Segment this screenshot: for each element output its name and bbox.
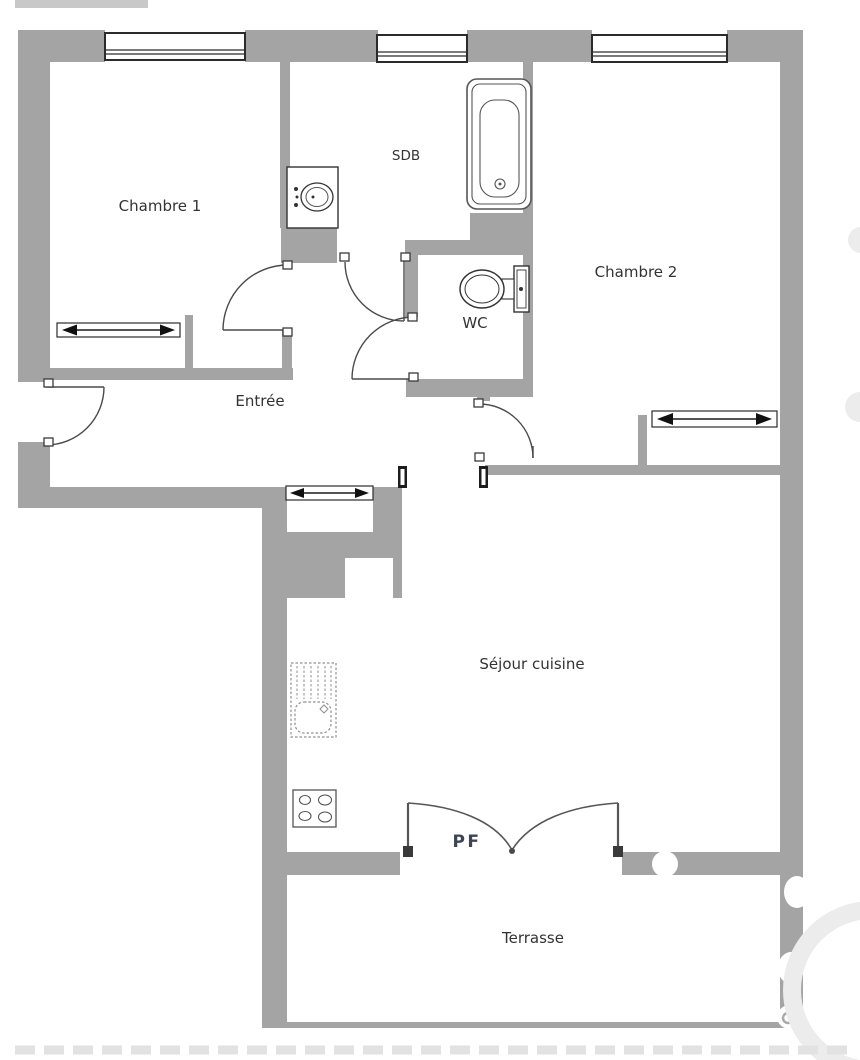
washbasin-icon: [287, 167, 338, 228]
hinge-block: [403, 846, 413, 857]
door-arc-icon: [408, 803, 618, 850]
window-icon: [592, 35, 727, 62]
toilet-icon: [460, 266, 529, 312]
entree-wardrobe: [286, 486, 373, 500]
floor-plan-drawing: Chambre 1 SDB Chambre 2 WC Entrée Séjour…: [0, 0, 860, 1060]
watermark-artifacts: [15, 227, 860, 1060]
chambre1-closet-stub: [185, 315, 193, 368]
top-wall-segment: [245, 30, 378, 62]
sejour-entry-jambs: [398, 466, 488, 488]
kitchen-thin-wall: [393, 558, 402, 598]
room-label-sdb: SDB: [392, 148, 420, 164]
entree-south-wall: [43, 487, 273, 508]
room-label-sejour: Séjour cuisine: [479, 655, 584, 673]
kitchen-block: [262, 545, 345, 598]
hinge-block: [613, 846, 623, 857]
wc-north-chunk: [470, 213, 533, 255]
left-wall-upper: [18, 30, 50, 382]
room-label-wc: WC: [462, 314, 487, 332]
chambre1-wardrobe: [57, 323, 180, 337]
chambre1-south-wall: [43, 368, 293, 380]
chambre2-door: [474, 399, 533, 461]
door-arc-icon: [223, 265, 288, 330]
entrance-door: [44, 379, 104, 446]
room-label-chambre1: Chambre 1: [119, 197, 202, 215]
wc-door: [352, 313, 418, 381]
terrace-bottom-wall: [263, 1022, 800, 1028]
cropped-ui-remnant: [15, 0, 148, 8]
bathtub-icon: [467, 79, 531, 209]
sdb-wall-return: [281, 228, 337, 263]
kitchen-right-block: [373, 487, 402, 540]
window-icon: [105, 33, 245, 60]
room-label-entree: Entrée: [235, 392, 284, 410]
french-door-pf: [403, 803, 623, 857]
wc-south-wall: [406, 379, 533, 397]
door-meeting-point: [509, 848, 515, 854]
sejour-south-wall-right: [622, 852, 780, 875]
outer-walls: [18, 30, 803, 1028]
top-wall-segment: [467, 30, 592, 62]
top-wall-segment: [727, 30, 803, 62]
floor-plan-page: Chambre 1 SDB Chambre 2 WC Entrée Séjour…: [0, 0, 860, 1060]
kitchen-sink-icon: [291, 663, 336, 737]
french-door-label: PF: [452, 832, 481, 852]
room-label-chambre2: Chambre 2: [595, 263, 678, 281]
chambre2-south-wall: [485, 465, 780, 475]
chambre2-wardrobe: [652, 411, 777, 427]
window-icon: [377, 35, 467, 62]
sdb-door: [340, 253, 410, 321]
interior-walls: [43, 62, 780, 875]
cooktop-icon: [293, 790, 336, 827]
door-leaf: [408, 803, 618, 852]
door-arc-icon: [345, 262, 404, 321]
chambre2-closet-stub: [638, 415, 647, 470]
sejour-south-wall-left: [263, 852, 400, 875]
kitchen-extension: [345, 540, 402, 558]
wc-north-wall: [405, 240, 470, 255]
windows: [105, 33, 727, 62]
door-arc-icon: [352, 317, 414, 379]
door-arc-icon: [46, 387, 104, 445]
chambre1-door: [223, 261, 292, 336]
wc-west-wall: [405, 255, 418, 317]
door-arc-icon: [479, 404, 533, 458]
room-label-terrasse: Terrasse: [501, 929, 564, 947]
